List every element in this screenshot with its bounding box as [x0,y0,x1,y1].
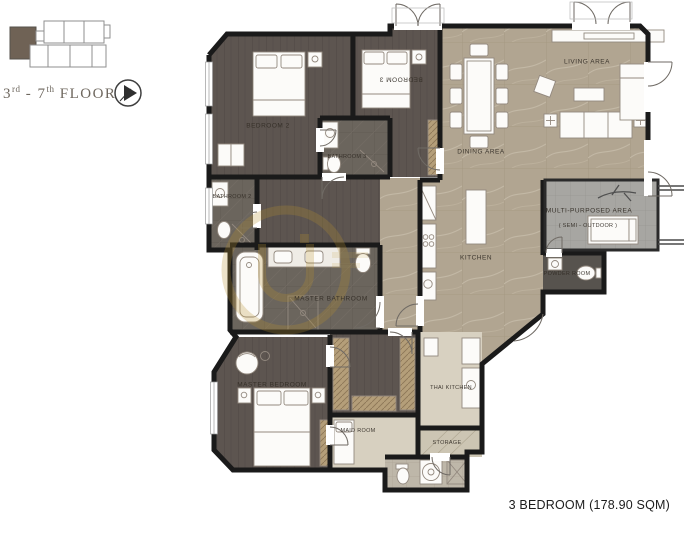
room-label-kitchen: KITCHEN [460,255,492,262]
room-label-thai-kitchen: THAI KITCHEN [430,385,472,391]
room-label-storage: STORAGE [433,440,462,446]
floor-title: 3rd - 7th FLOOR [3,84,153,103]
room-label-master-bathroom: MASTER BATHROOM [294,296,367,303]
room-label-powder-room: POWDER ROOM [544,271,591,277]
room-label-semi-outdoor: ( SEMI - OUTDOOR ) [559,223,618,229]
key-plan-building [10,21,110,67]
room-label-master-bedroom: MASTER BEDROOM [237,382,306,389]
room-label-living-area: LIVING AREA [564,59,610,66]
balcony-railing-icon [658,186,684,244]
room-label-maid-room: MAID ROOM [340,428,375,434]
room-label-multi-purposed-area: MULTI-PURPOSED AREA [546,208,632,215]
room-label-bedroom-3: BEDROOM 3 [379,76,423,83]
room-label-bathroom-2: BATHROOM 2 [213,194,252,200]
bed-maid-icon [334,420,354,464]
room-label-bathroom-3: BATHROOM 3 [328,154,367,160]
room-label-bedroom-2: BEDROOM 2 [246,123,290,130]
room-label-dining-area: DINING AREA [457,149,504,156]
unit-info-text: 3 BEDROOM (178.90 SQM) [500,498,670,512]
floor-plan-page: 3rd - 7th FLOOR BEDROOM 2 BEDROOM 3 BATH… [0,0,684,533]
